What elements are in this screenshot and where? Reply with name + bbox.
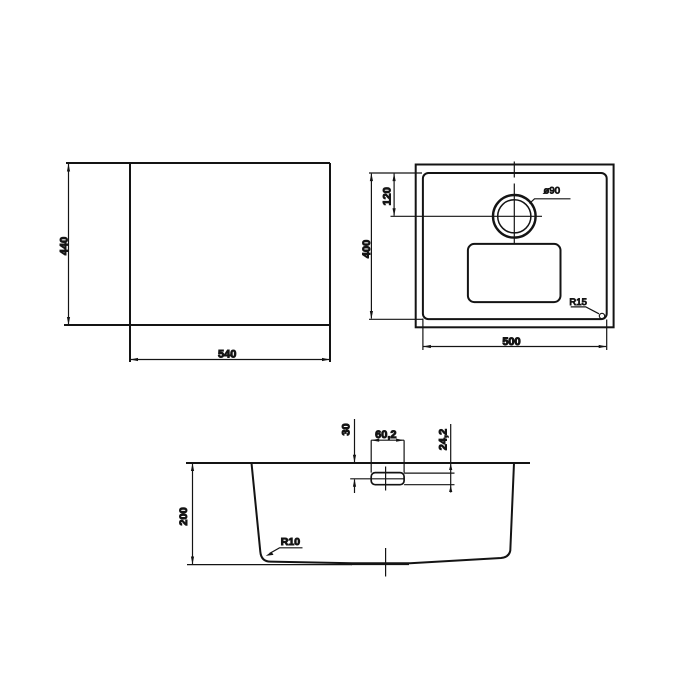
svg-text:24,2: 24,2 (438, 429, 450, 450)
svg-text:400: 400 (361, 240, 373, 258)
svg-text:R10: R10 (281, 536, 300, 548)
svg-text:30: 30 (341, 423, 353, 435)
svg-text:440: 440 (59, 237, 71, 255)
svg-text:60,2: 60,2 (375, 429, 396, 441)
svg-text:120: 120 (382, 187, 394, 205)
svg-text:200: 200 (178, 507, 190, 525)
svg-text:R15: R15 (569, 297, 587, 308)
svg-text:ø90: ø90 (543, 186, 560, 197)
svg-text:500: 500 (502, 336, 520, 348)
svg-text:540: 540 (218, 349, 236, 361)
